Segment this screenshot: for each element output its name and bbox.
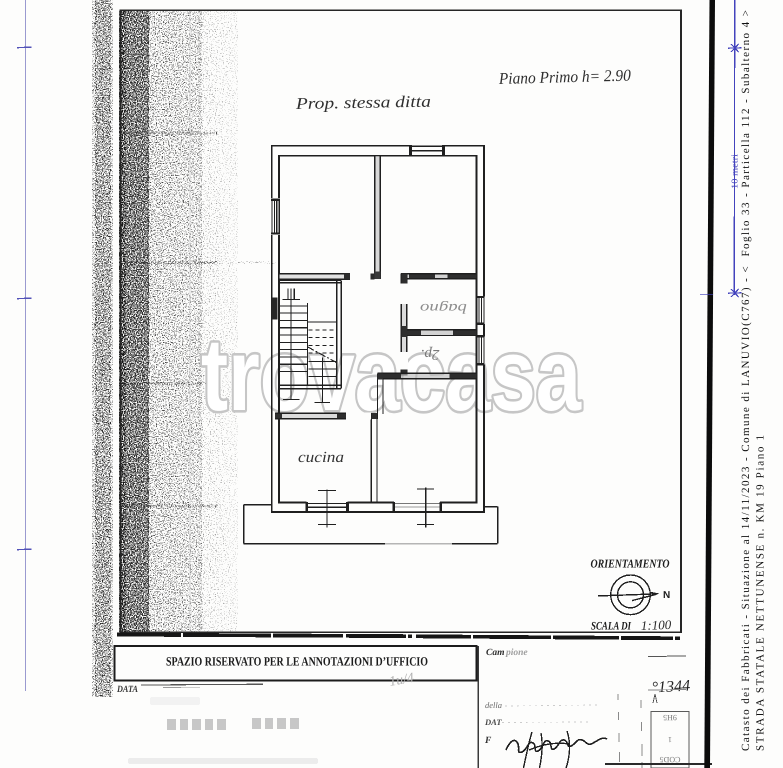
svg-text:10 metri: 10 metri (730, 153, 740, 189)
svg-text:ORIENTAMENTO: ORIENTAMENTO (591, 557, 670, 571)
svg-text:STRADA STATALE NETTUNENSE n. K: STRADA STATALE NETTUNENSE n. KM 19 Piano… (755, 435, 767, 751)
svg-text:cucina: cucina (298, 449, 344, 466)
svg-text:F: F (484, 736, 492, 746)
svg-text:1:100: 1:100 (641, 617, 672, 633)
svg-text:DATA: DATA (116, 685, 138, 695)
svg-text:°1344: °1344 (651, 678, 690, 697)
svg-text:Cam: Cam (486, 648, 504, 658)
svg-text:SPAZIO RISERVATO PER LE ANNOTA: SPAZIO RISERVATO PER LE ANNOTAZIONI D’UF… (166, 655, 428, 669)
svg-text:Prop. stessa ditta: Prop. stessa ditta (295, 92, 431, 113)
svg-text:N: N (663, 590, 670, 601)
svg-text:bagno: bagno (420, 300, 467, 315)
svg-text:della: della (485, 700, 502, 710)
svg-text:9H5: 9H5 (663, 713, 677, 722)
svg-text:pione: pione (505, 648, 528, 658)
svg-text:Piano Primo h= 2.90: Piano Primo h= 2.90 (498, 66, 632, 88)
svg-text:DAT: DAT (484, 717, 502, 727)
svg-text:Catasto dei Fabbricati - Situa: Catasto dei Fabbricati - Situazione al 1… (740, 10, 752, 751)
svg-text:1: 1 (668, 735, 672, 744)
svg-text:2p.: 2p. (421, 346, 440, 362)
svg-text:SCALA DI: SCALA DI (591, 621, 631, 633)
svg-text:COD5: COD5 (660, 755, 681, 764)
